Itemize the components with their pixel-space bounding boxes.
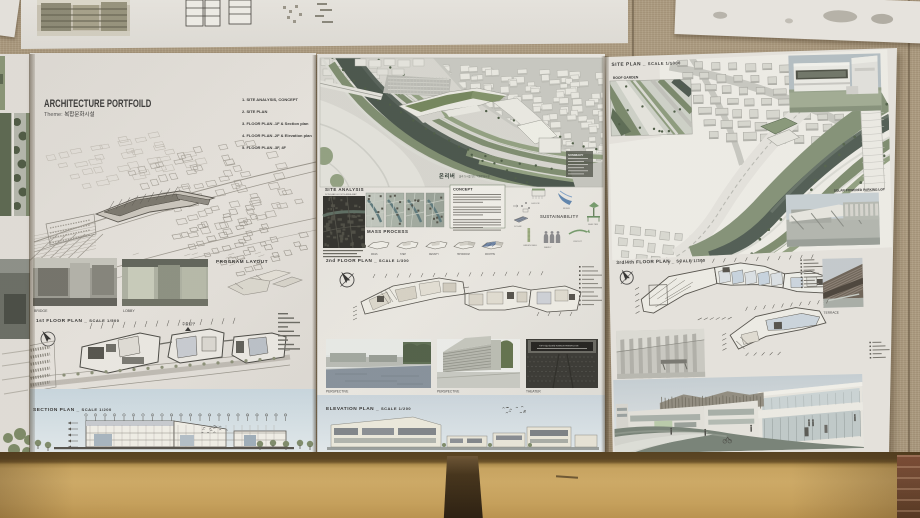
svg-text:11: 11 [180, 415, 182, 417]
svg-text:2: 2 [95, 415, 96, 417]
svg-text:SUSTAINABILITY: SUSTAINABILITY [540, 214, 579, 219]
svg-text:14: 14 [209, 415, 211, 417]
svg-text:ARCHITECTURE PORTFOILD: ARCHITECTURE PORTFOILD [44, 98, 151, 111]
svg-text:5. FLOOR PLAN -3F, 4F: 5. FLOOR PLAN -3F, 4F [242, 145, 287, 150]
svg-text:THEATER: THEATER [526, 390, 541, 394]
svg-text:DENSITY: DENSITY [429, 254, 439, 256]
svg-text:15: 15 [218, 415, 220, 417]
svg-text:MONTHS: MONTHS [485, 254, 495, 256]
svg-text:22: 22 [285, 415, 287, 417]
svg-text:SHELTER: SHELTER [588, 224, 598, 226]
svg-text:STEP: STEP [400, 254, 406, 256]
svg-text:1st FLOOR PLAN _ SCALE 1/500: 1st FLOOR PLAN _ SCALE 1/500 [36, 318, 120, 324]
svg-text:LOBBY: LOBBY [123, 309, 135, 313]
svg-text:3. FLOOR PLAN -1F & Section pl: 3. FLOOR PLAN -1F & Section plan [242, 121, 309, 126]
svg-text:Theme: 복합문화시설: Theme: 복합문화시설 [44, 110, 95, 118]
svg-text:FAMILY: FAMILY [544, 246, 552, 249]
svg-text:1. SITE ANALYSIS, CONCEPT: 1. SITE ANALYSIS, CONCEPT [242, 97, 298, 102]
svg-text:SUMMARY: SUMMARY [568, 153, 583, 157]
svg-text:PERSPECTIVE: PERSPECTIVE [326, 390, 348, 394]
svg-text:PERSPECTIVE: PERSPECTIVE [437, 390, 459, 394]
svg-text:5: 5 [124, 415, 125, 417]
svg-text:18: 18 [247, 415, 249, 417]
svg-text:17: 17 [237, 415, 239, 417]
svg-text:RIVER: RIVER [563, 208, 570, 210]
svg-text:6: 6 [133, 415, 134, 417]
svg-text:BRIDGE: BRIDGE [34, 309, 48, 313]
svg-text:CIRCUIT: CIRCUIT [573, 241, 583, 243]
svg-text:HIPODROM: HIPODROM [457, 254, 470, 256]
svg-text:MASS: MASS [371, 253, 378, 256]
svg-text:CONCEPT: CONCEPT [453, 187, 473, 192]
svg-text:1: 1 [86, 415, 87, 417]
svg-text:4: 4 [114, 415, 115, 417]
svg-text:TERRACE: TERRACE [824, 311, 839, 315]
svg-text:13: 13 [199, 415, 201, 417]
svg-text:4. FLOOR PLAN -2F & Elevation: 4. FLOOR PLAN -2F & Elevation plan [242, 133, 312, 138]
svg-text:16: 16 [228, 415, 230, 417]
svg-text:7: 7 [143, 415, 144, 417]
svg-text:3: 3 [105, 415, 106, 417]
svg-text:G-ROOF: G-ROOF [531, 203, 540, 205]
svg-text:ROOF GARDEN: ROOF GARDEN [613, 75, 639, 80]
svg-text:12: 12 [190, 415, 192, 417]
svg-text:SITE ANALYSIS: SITE ANALYSIS [325, 187, 364, 192]
svg-text:MASS PROCESS: MASS PROCESS [367, 229, 408, 234]
svg-text:물과 도시를 잇는 복합문화시설: 물과 도시를 잇는 복합문화시설 [459, 174, 490, 178]
svg-text:2. SITE PLAN: 2. SITE PLAN [242, 109, 267, 114]
svg-text:19: 19 [256, 415, 258, 417]
svg-text:온리버: 온리버 [439, 172, 455, 180]
svg-text:2nd FLOOR PLAN _ SCALE 1/300: 2nd FLOOR PLAN _ SCALE 1/300 [326, 258, 409, 263]
svg-text:DONGJAK-GU SITE AREA MAP: DONGJAK-GU SITE AREA MAP [325, 193, 357, 196]
svg-text:20: 20 [266, 415, 268, 417]
svg-text:21: 21 [275, 415, 277, 417]
svg-text:8: 8 [152, 415, 153, 417]
svg-text:GREEN WALL: GREEN WALL [523, 244, 538, 247]
svg-text:SOLAR: SOLAR [514, 225, 522, 228]
svg-text:9: 9 [162, 415, 163, 417]
svg-text:10: 10 [171, 415, 173, 417]
svg-text:PROGRAM LAYOUT: PROGRAM LAYOUT [216, 259, 268, 264]
